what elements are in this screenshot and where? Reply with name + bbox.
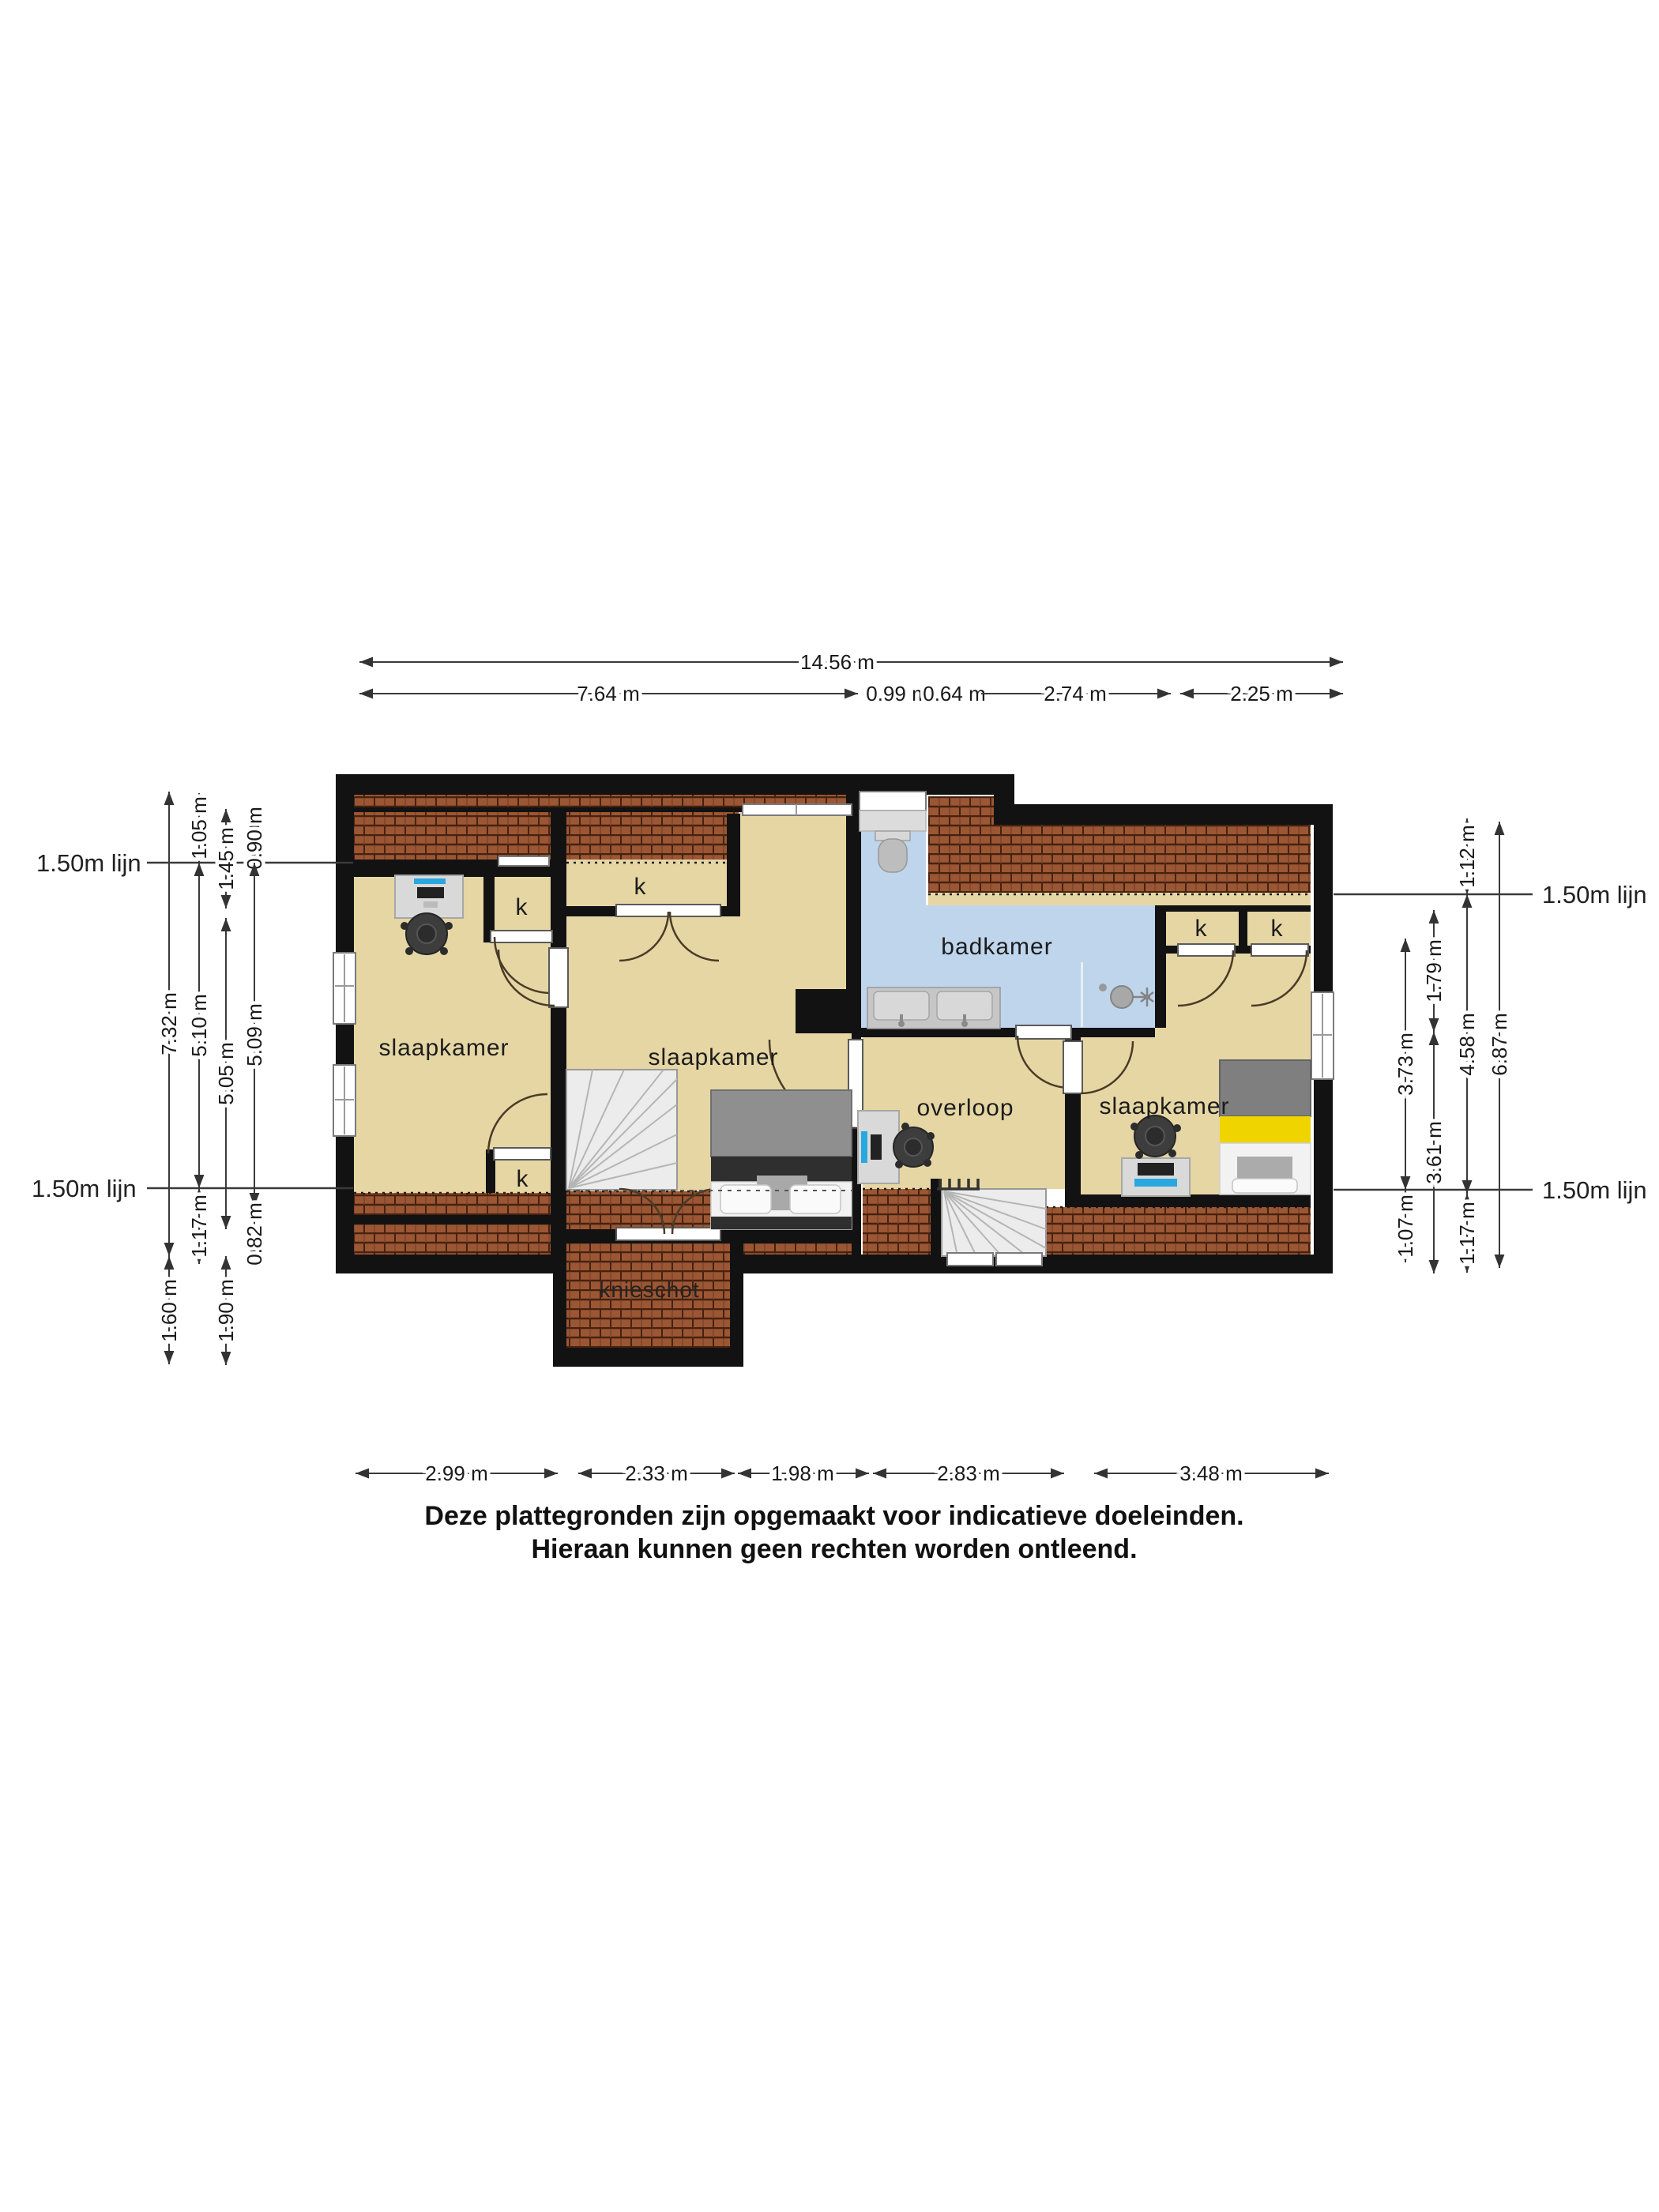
dim-top-total: 14.56 m (800, 650, 875, 674)
dim-bottom-1: 2.33 m (625, 1461, 688, 1485)
dim-right3-1: 4.58 m (1455, 1013, 1479, 1076)
toilet (875, 831, 910, 872)
floor-plan-page: slaapkamer slaapkamer slaapkamer badkame… (0, 0, 1659, 2212)
label-landing: overloop (916, 1095, 1014, 1121)
sink-vanity (867, 987, 1000, 1029)
label-closet-k1: k (516, 894, 529, 920)
dim-right3-0: 1.12 m (1455, 825, 1479, 888)
label-bedroom-right: slaapkamer (1099, 1093, 1229, 1119)
dimensions-bottom: 2.99 m 2.33 m 1.98 m 2.83 m 3.48 m (355, 1461, 1329, 1485)
disclaimer-line-2: Hieraan kunnen geen rechten worden ontle… (531, 1534, 1137, 1564)
wall-bottom-left (336, 1255, 566, 1273)
wall-divider-left-middle (551, 811, 566, 1255)
dim-top-2: 0.64 m (923, 682, 986, 705)
bed-double-middle (711, 1090, 852, 1229)
label-bedroom-middle: slaapkamer (648, 1044, 778, 1070)
label-knee-wall: knieschot (599, 1277, 699, 1302)
desk-bedroom-left (395, 875, 463, 918)
wall-bathroom-right (1155, 905, 1166, 1028)
label-bedroom-left: slaapkamer (378, 1035, 509, 1061)
disclaimer: Deze plattegronden zijn opgemaakt voor i… (424, 1501, 1243, 1564)
window-top-middle-room (743, 804, 852, 815)
window-dormer-bathroom (860, 792, 926, 831)
stairs-middle-room (566, 1070, 677, 1190)
dimensions-top: 14.56 m 7.64 m 0.99 m 0.64 m 2.74 m 2.25… (359, 650, 1343, 705)
label-reference-left-top: 1.50m lijn (36, 849, 141, 877)
dim-right2-0: 1.79 m (1422, 939, 1446, 1003)
wall-knieschot-right (730, 1243, 743, 1367)
dim-top-1: 0.99 m (866, 682, 929, 705)
wall-knieschot-bottom (553, 1348, 743, 1367)
dim-left2-2: 1.17 m (187, 1194, 211, 1258)
window-left-1 (333, 953, 355, 1024)
label-reference-right-top: 1.50m lijn (1542, 881, 1647, 908)
window-closet-k1-top (498, 856, 549, 866)
room-floor-bedroom-left (354, 875, 551, 1193)
desk-bedroom-right (1122, 1158, 1190, 1196)
dim-right1-1: 1.07 m (1394, 1194, 1417, 1258)
label-closet-right-1: k (1195, 916, 1208, 942)
label-closet-middle: k (634, 874, 647, 900)
dim-top-0: 7.64 m (577, 682, 640, 705)
wall-closet-k1-left (483, 877, 495, 934)
floor-plan-drawing: slaapkamer slaapkamer slaapkamer badkame… (0, 0, 1659, 2212)
label-closet-k2: k (517, 1166, 529, 1192)
dim-bottom-3: 2.83 m (937, 1461, 1000, 1485)
dimensions-right: 3.73 m 1.07 m 1.79 m 3.61 m 1.12 m 4.58 … (1394, 818, 1511, 1273)
wall-closet-middle-corner (727, 814, 740, 916)
wall-bathroom-left (846, 792, 861, 989)
knee-wall-line-left (354, 1215, 551, 1224)
dim-left2-1: 5.10 m (187, 994, 211, 1057)
wall-top-right (994, 804, 1333, 825)
label-bathroom: badkamer (941, 934, 1052, 960)
disclaimer-line-1: Deze plattegronden zijn opgemaakt voor i… (424, 1501, 1243, 1531)
dim-top-4: 2.25 m (1230, 682, 1293, 705)
roof-band-top-left (354, 812, 739, 860)
window-left-2 (333, 1065, 355, 1136)
label-closet-right-2: k (1271, 916, 1284, 942)
window-right (1311, 992, 1334, 1079)
roof-band-top-right-step (928, 796, 994, 807)
stairs-landing (942, 1189, 1046, 1256)
dim-right2-1: 3.61 m (1422, 1121, 1446, 1184)
wall-bathroom-bottom (861, 1028, 1155, 1037)
dim-left3-2: 1.90 m (214, 1279, 238, 1342)
dim-top-3: 2.74 m (1044, 682, 1107, 705)
dim-left3-1: 5.05 m (214, 1042, 238, 1105)
dim-bottom-0: 2.99 m (425, 1461, 488, 1485)
dim-left1-1: 1.60 m (157, 1279, 181, 1342)
label-reference-left-bottom: 1.50m lijn (32, 1175, 137, 1202)
dim-left2-0: 1.05 m (187, 796, 211, 860)
dim-left1-0: 7.32 m (157, 992, 181, 1055)
wall-block-duct (796, 989, 861, 1033)
dim-left4-0: 0.90 m (243, 807, 266, 870)
roof-band-landing (863, 1189, 931, 1256)
dim-right1-0: 3.73 m (1394, 1033, 1417, 1096)
dim-bottom-2: 1.98 m (771, 1461, 834, 1485)
bed-single-right (1220, 1060, 1311, 1194)
dim-left3-0: 1.45 m (214, 827, 238, 890)
dimensions-left: 7.32 m 1.60 m 1.05 m 5.10 m 1.17 m 1.45 … (157, 792, 266, 1365)
wall-closets-right-top (1155, 905, 1311, 912)
roof-band-bottom-right (1046, 1207, 1311, 1256)
label-reference-right-bottom: 1.50m lijn (1542, 1176, 1647, 1204)
dim-right3-2: 1.17 m (1455, 1202, 1479, 1265)
dim-bottom-4: 3.48 m (1179, 1461, 1243, 1485)
dim-left4-2: 0.82 m (243, 1202, 266, 1266)
dim-right4-0: 6.87 m (1488, 1013, 1511, 1076)
dim-left4-1: 5.09 m (243, 1003, 266, 1066)
